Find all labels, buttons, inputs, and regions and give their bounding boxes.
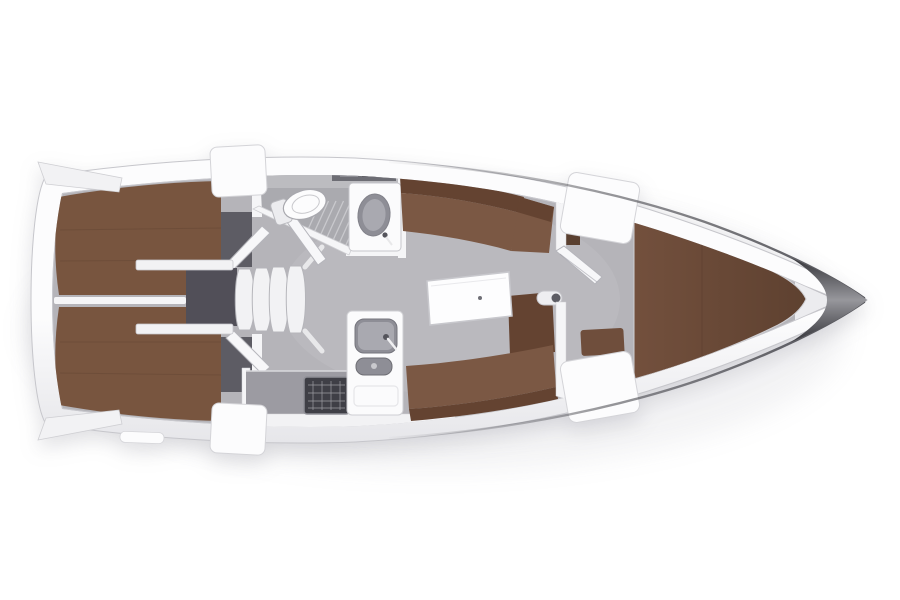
table-fitting: [478, 296, 482, 300]
deck-block-port-forward: [559, 171, 641, 245]
salon-table: [427, 272, 512, 325]
aft-berth-divider: [54, 297, 186, 304]
companionway-steps: [235, 266, 305, 333]
engine-compartment: [186, 268, 237, 326]
yacht-deck-plan: [0, 0, 900, 600]
deck-block-starboard-forward: [559, 350, 641, 424]
head-sink-unit: [349, 183, 401, 251]
galley-sink-unit: [347, 311, 403, 415]
deck-block-port-aft: [210, 145, 268, 198]
stove: [304, 377, 349, 414]
swim-platform-step: [120, 431, 164, 444]
companionway-frame-bottom: [136, 324, 233, 334]
companionway-frame-top: [136, 260, 233, 270]
deck-block-starboard-aft: [210, 403, 268, 456]
